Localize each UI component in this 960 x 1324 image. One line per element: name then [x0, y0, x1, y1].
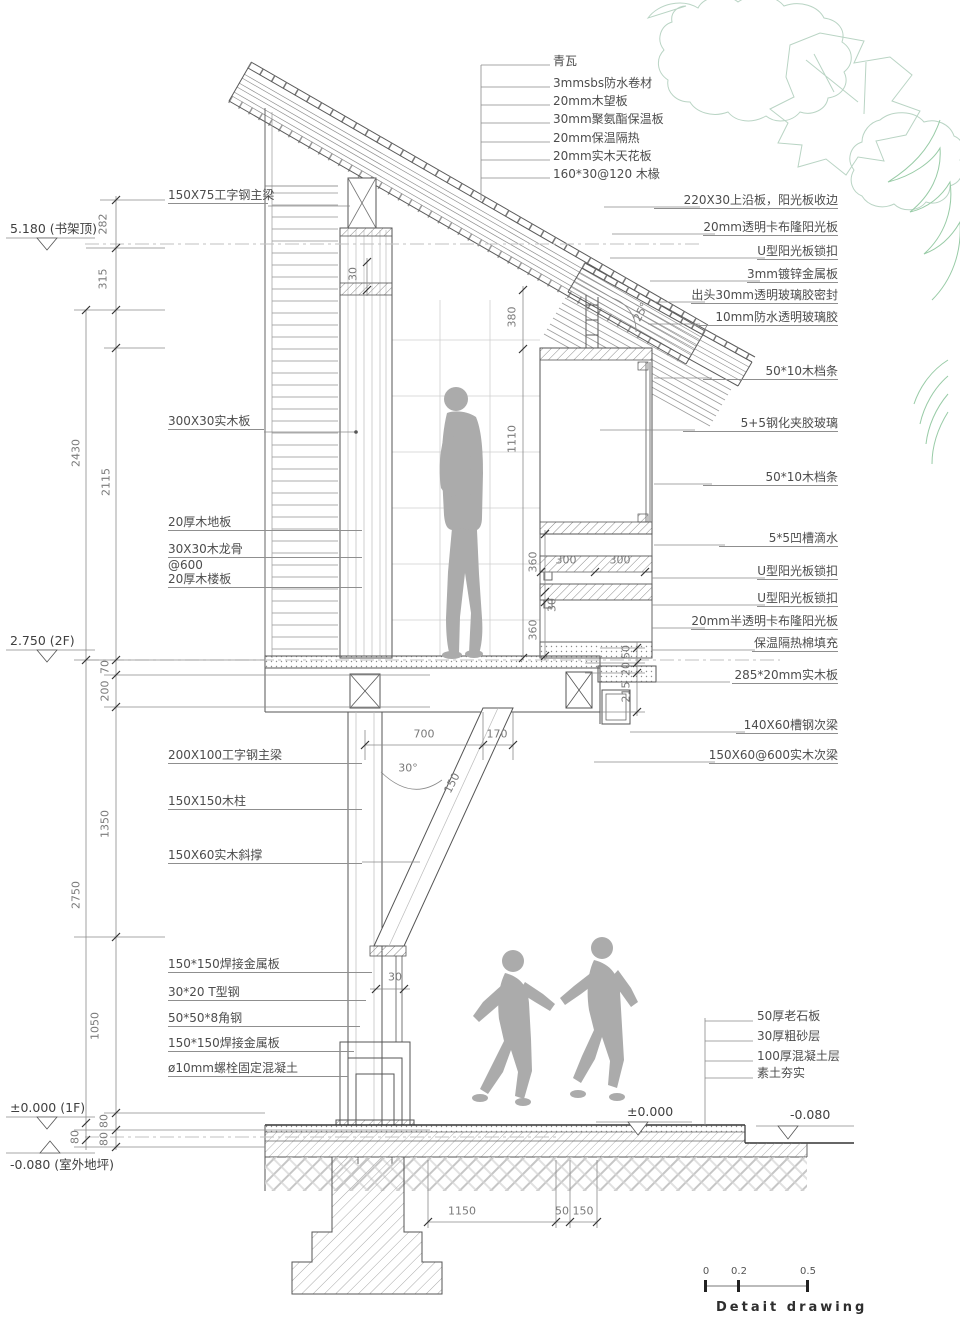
detail-drawing-page: 青瓦 3mmsbs防水卷材 20mm木望板 30mm聚氨酯保温板 20mm保温隔… — [0, 0, 960, 1324]
label-wood-floor-20: 20厚木地板 — [168, 515, 362, 531]
dim-1050: 1050 — [89, 1012, 102, 1040]
label-roof-layer-7: 160*30@120 木椽 — [553, 167, 660, 181]
label-insulation-fill: 保温隔热棉填充 — [752, 636, 838, 652]
level-shelf-top: 5.180 (书架顶) — [10, 221, 97, 236]
level-2f-note: (2F) — [50, 633, 75, 648]
label-wood-batten-1: 50*10木档条 — [703, 364, 838, 380]
label-welded-plate-2: 150*150焊接金属板 — [168, 1036, 354, 1052]
floor-2f — [265, 656, 656, 724]
dim-150-b: 150 — [573, 1205, 594, 1218]
level-2f-value: 2.750 — [10, 633, 46, 648]
label-steel-main-beam-200: 200X100工字钢主梁 — [168, 748, 362, 764]
dim-200: 200 — [99, 681, 112, 702]
dim-30-brace-base: 30 — [388, 971, 402, 984]
label-laminated-glass: 5+5钢化夹胶玻璃 — [683, 416, 838, 432]
label-angle-steel: 50*50*8角钢 — [168, 1011, 360, 1027]
scale-tick-0: 0 — [703, 1266, 709, 1277]
dim-30-top: 30 — [347, 267, 360, 281]
level-shelf-top-note: (书架顶) — [50, 221, 97, 236]
label-steel-main-beam-150: 150X75工字钢主梁 — [168, 188, 268, 204]
label-wood-brace: 150X60实木斜撑 — [168, 848, 362, 864]
label-t-steel: 30*20 T型钢 — [168, 985, 366, 1001]
dim-2430: 2430 — [70, 439, 83, 467]
dim-70: 70 — [99, 660, 112, 674]
label-wood-board-300: 300X30实木板 — [168, 414, 264, 430]
dim-1110: 1110 — [506, 425, 519, 453]
dimension-lines — [6, 65, 854, 1228]
label-roof-layer-1: 青瓦 — [553, 54, 577, 68]
label-roof-layer-4: 30mm聚氨酯保温板 — [553, 112, 664, 126]
level-outdoor-note: (室外地坪) — [54, 1157, 114, 1172]
dim-380: 380 — [506, 307, 519, 328]
label-roof-layer-6: 20mm实木天花板 — [553, 149, 652, 163]
label-polycarbonate-20: 20mm透明卡布隆阳光板 — [703, 220, 838, 236]
dim-50: 50 — [620, 645, 633, 659]
dim-20: 20 — [620, 662, 633, 676]
figure-children — [472, 937, 638, 1106]
label-galvanized-plate: 3mm镀锌金属板 — [747, 267, 838, 283]
label-keel-spacing: @600 — [168, 558, 203, 572]
dim-30-mid: 30 — [546, 598, 559, 612]
dim-360-a: 360 — [527, 552, 540, 573]
figure-man — [440, 387, 483, 659]
level-2f: 2.750 (2F) — [10, 633, 75, 648]
dim-1350: 1350 — [99, 810, 112, 838]
dim-315: 315 — [97, 269, 110, 290]
dim-angle-30: 30° — [398, 762, 418, 775]
label-channel-beam: 140X60槽钢次梁 — [736, 718, 838, 734]
dim-282: 282 — [97, 214, 110, 235]
dim-170: 170 — [487, 728, 508, 741]
dim-700: 700 — [414, 728, 435, 741]
label-wood-batten-2: 50*10木档条 — [703, 470, 838, 486]
label-roof-layer-2: 3mmsbs防水卷材 — [553, 76, 652, 90]
level-outdoor: -0.080 (室外地坪) — [10, 1157, 114, 1172]
dim-300-a: 300 — [556, 554, 577, 567]
level-1f: ±0.000 (1F) — [10, 1100, 85, 1115]
label-u-lock-2: U型阳光板锁扣 — [757, 564, 838, 580]
level-shelf-top-value: 5.180 — [10, 221, 46, 236]
label-wood-column: 150X150木柱 — [168, 794, 362, 810]
label-anchor-bolt: ø10mm螺栓固定混凝土 — [168, 1061, 348, 1077]
level-grade: -0.080 — [790, 1107, 830, 1122]
level-1f-note: (1F) — [60, 1100, 85, 1115]
label-concrete-100: 100厚混凝土层 — [757, 1049, 840, 1063]
scale-tick-05: 0.5 — [800, 1266, 816, 1277]
scale-bar — [704, 1280, 809, 1292]
label-sealant-30: 出头30mm透明玻璃胶密封 — [691, 288, 838, 304]
dim-215: 215 — [620, 682, 633, 703]
level-outdoor-value: -0.080 — [10, 1157, 50, 1172]
label-coarse-sand-30: 30厚粗砂层 — [757, 1029, 820, 1043]
label-u-lock-3: U型阳光板锁扣 — [757, 591, 838, 607]
dim-80-outer: 80 — [69, 1130, 82, 1144]
dim-2750: 2750 — [70, 881, 83, 909]
label-roof-layer-5: 20mm保温隔热 — [553, 131, 640, 145]
label-top-trim-board: 220X30上沿板，阳光板收边 — [654, 193, 838, 209]
dim-300-b: 300 — [610, 554, 631, 567]
drawing-title: Detait drawing — [716, 1300, 867, 1315]
dim-80-lower: 80 — [98, 1132, 111, 1146]
label-waterproof-glue: 10mm防水透明玻璃胶 — [695, 310, 838, 326]
level-1f-value: ±0.000 — [10, 1100, 56, 1115]
label-welded-plate-1: 150*150焊接金属板 — [168, 957, 372, 973]
dim-1150: 1150 — [448, 1205, 476, 1218]
dim-2115: 2115 — [100, 468, 113, 496]
label-drip-groove: 5*5凹槽滴水 — [719, 531, 838, 547]
dim-50-b: 50 — [555, 1205, 569, 1218]
label-rammed-earth: 素土夯实 — [757, 1066, 805, 1080]
label-translucent-panel: 20mm半透明卡布隆阳光板 — [691, 614, 838, 630]
clerestory-window — [540, 348, 652, 534]
diagonal-brace — [374, 708, 513, 946]
level-slab-top: ±0.000 — [627, 1104, 673, 1119]
label-wood-keel-30: 30X30木龙骨 — [168, 542, 362, 558]
label-wood-plank-285: 285*20mm实木板 — [732, 668, 838, 684]
label-wood-joist: 150X60@600实木次梁 — [709, 748, 838, 764]
label-u-lock-1: U型阳光板锁扣 — [757, 244, 838, 260]
label-wood-slab-20: 20厚木楼板 — [168, 572, 362, 588]
label-roof-layer-3: 20mm木望板 — [553, 94, 628, 108]
scale-tick-02: 0.2 — [731, 1266, 747, 1277]
dim-360-b: 360 — [527, 620, 540, 641]
dim-80-upper: 80 — [98, 1114, 111, 1128]
label-stone-slab-50: 50厚老石板 — [757, 1009, 820, 1023]
